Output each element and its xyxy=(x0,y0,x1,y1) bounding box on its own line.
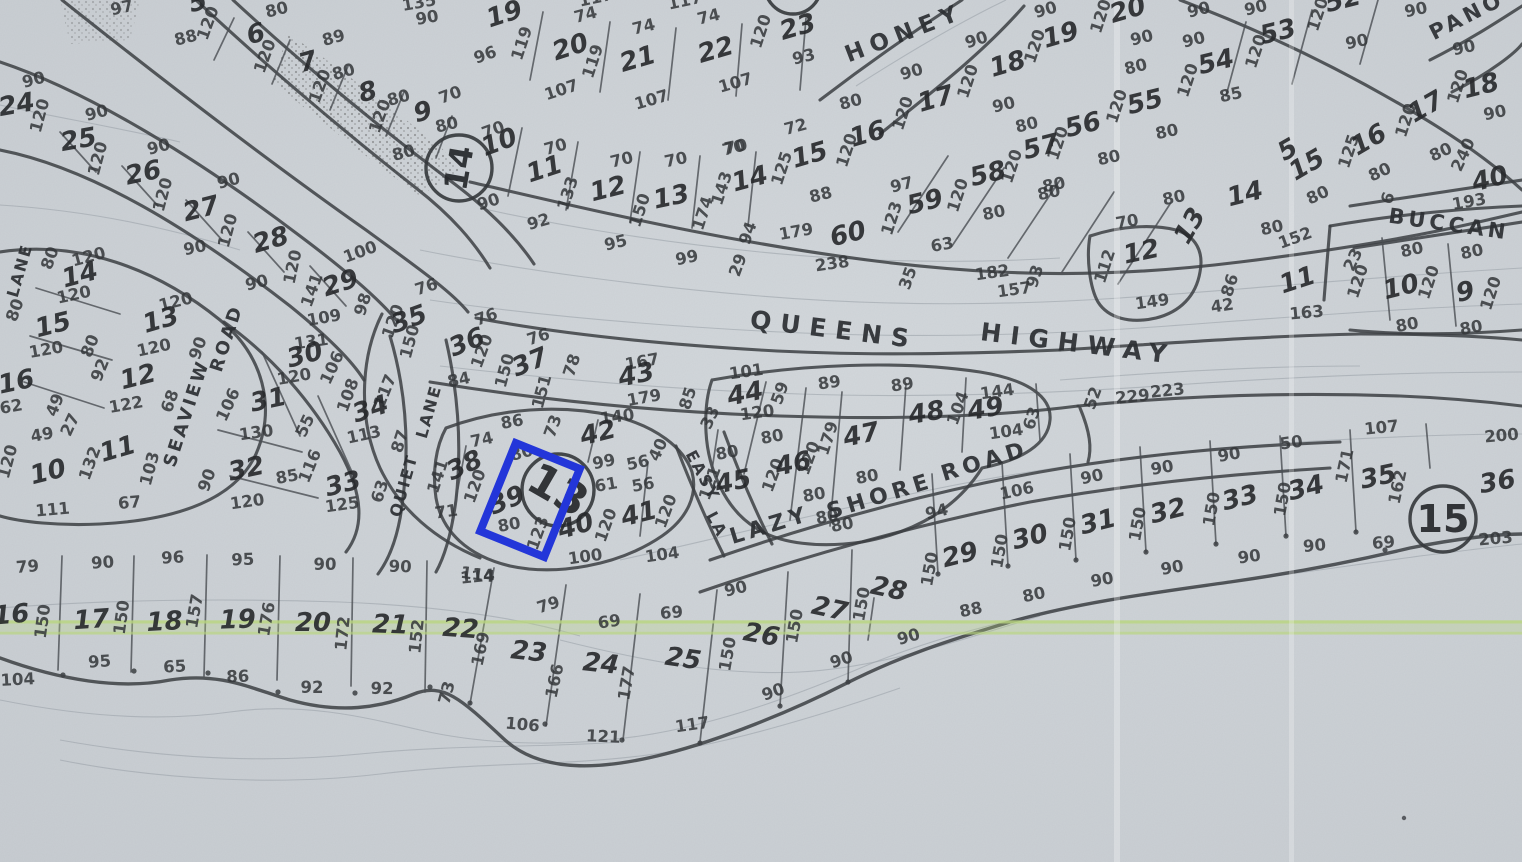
dimension-label: 90 xyxy=(1159,556,1185,579)
survey-point-dot xyxy=(845,679,850,684)
dimension-label: 90 xyxy=(388,557,412,577)
lot-number-label: 17 xyxy=(72,604,111,637)
scan-fold-line xyxy=(1114,0,1120,862)
dimension-label: 96 xyxy=(161,547,185,567)
dimension-label: 56 xyxy=(630,473,656,496)
lot-number-label: 22 xyxy=(441,613,479,645)
dimension-label: 80 xyxy=(759,425,785,448)
lot-number-label: 25 xyxy=(663,642,703,677)
dimension-label: 61 xyxy=(593,473,619,496)
survey-point-dot xyxy=(1213,541,1218,546)
survey-point-dot xyxy=(275,689,280,694)
dimension-label: 90 xyxy=(1237,546,1262,568)
dimension-label: 107 xyxy=(1363,416,1399,438)
survey-point-dot xyxy=(697,740,702,745)
lot-number-label: 25 xyxy=(58,122,99,158)
dimension-label: 152 xyxy=(405,618,427,654)
lot-number-label: 16 xyxy=(0,599,31,632)
dimension-label: 90 xyxy=(1149,456,1175,479)
survey-point-dot xyxy=(205,670,210,675)
dimension-label: 90 xyxy=(1302,535,1327,556)
lot-number-label: 24 xyxy=(0,87,37,123)
dimension-label: 50 xyxy=(1279,432,1304,454)
lot-number-label: 48 xyxy=(905,395,947,431)
survey-point-dot xyxy=(1353,529,1358,534)
dimension-label: 86 xyxy=(226,667,250,687)
dimension-label: 90 xyxy=(414,6,440,29)
survey-point-dot xyxy=(60,672,65,677)
dimension-label: 95 xyxy=(231,550,255,570)
dimension-label: 89 xyxy=(890,374,915,396)
dimension-label: 80 xyxy=(714,441,740,464)
lot-number-label: 24 xyxy=(581,647,620,681)
lot-number-label: 18 xyxy=(146,606,184,638)
dimension-label: 42 xyxy=(1210,295,1235,317)
dimension-label: 89 xyxy=(817,372,842,394)
dimension-label: 203 xyxy=(1478,528,1514,550)
survey-point-dot xyxy=(1283,533,1288,538)
map-canvas: 1315149012090120901209012090901201411009… xyxy=(0,0,1522,862)
dimension-label: 104 xyxy=(0,669,35,690)
dimension-label: 90 xyxy=(1216,443,1242,466)
lot-number-label: 20 xyxy=(295,608,331,638)
dimension-label: 71 xyxy=(434,501,459,523)
dimension-label: 90 xyxy=(90,552,114,573)
dimension-label: 106 xyxy=(504,714,540,736)
dimension-label: 49 xyxy=(29,423,55,446)
survey-point-dot xyxy=(467,700,472,705)
dimension-label: 86 xyxy=(499,410,525,433)
dimension-label: 95 xyxy=(87,651,111,672)
lot-number-label: 19 xyxy=(219,604,256,635)
survey-point-dot xyxy=(131,668,136,673)
survey-point-dot xyxy=(1073,557,1078,562)
dimension-label: 79 xyxy=(15,556,40,577)
block-number-label: 14 xyxy=(436,143,481,193)
dimension-label: 229 xyxy=(1114,385,1150,407)
dimension-label: 80 xyxy=(1458,316,1484,339)
plat-map-scan: 1315149012090120901209012090901201411009… xyxy=(0,0,1522,862)
survey-point-dot xyxy=(352,690,357,695)
lot-number-label: 26 xyxy=(741,617,782,653)
survey-point-dot xyxy=(542,721,547,726)
dimension-label: 67 xyxy=(117,492,142,513)
dimension-label: 172 xyxy=(331,615,353,651)
survey-point-dot xyxy=(427,684,432,689)
dimension-label: 70 xyxy=(1114,210,1140,233)
dimension-label: 65 xyxy=(163,656,187,676)
survey-point-dot xyxy=(777,703,782,708)
dimension-label: 163 xyxy=(1289,302,1325,324)
lot-number-label: 36 xyxy=(1477,464,1518,500)
dimension-label: 111 xyxy=(35,499,71,521)
lot-number-label: 49 xyxy=(964,391,1006,427)
dimension-label: 69 xyxy=(597,611,622,633)
dimension-label: 92 xyxy=(370,679,393,698)
dimension-label: 90 xyxy=(1089,568,1115,591)
dimension-label: 223 xyxy=(1149,379,1185,401)
lot-number-label: 23 xyxy=(509,635,548,669)
lot-number-label: 21 xyxy=(372,609,409,640)
survey-point-dot xyxy=(1143,549,1148,554)
dimension-label: 121 xyxy=(586,726,621,747)
dimension-label: 69 xyxy=(1371,532,1396,553)
dimension-label: 92 xyxy=(301,678,324,697)
dimension-label: 200 xyxy=(1484,425,1520,447)
scan-fold-line xyxy=(1289,0,1294,862)
dimension-label: 63 xyxy=(929,233,955,256)
block-number-label: 15 xyxy=(1417,497,1470,541)
dimension-label: 80 xyxy=(1394,313,1420,336)
dimension-label: 90 xyxy=(314,555,337,574)
ink-speck xyxy=(1402,816,1406,820)
dimension-label: 69 xyxy=(659,602,684,623)
